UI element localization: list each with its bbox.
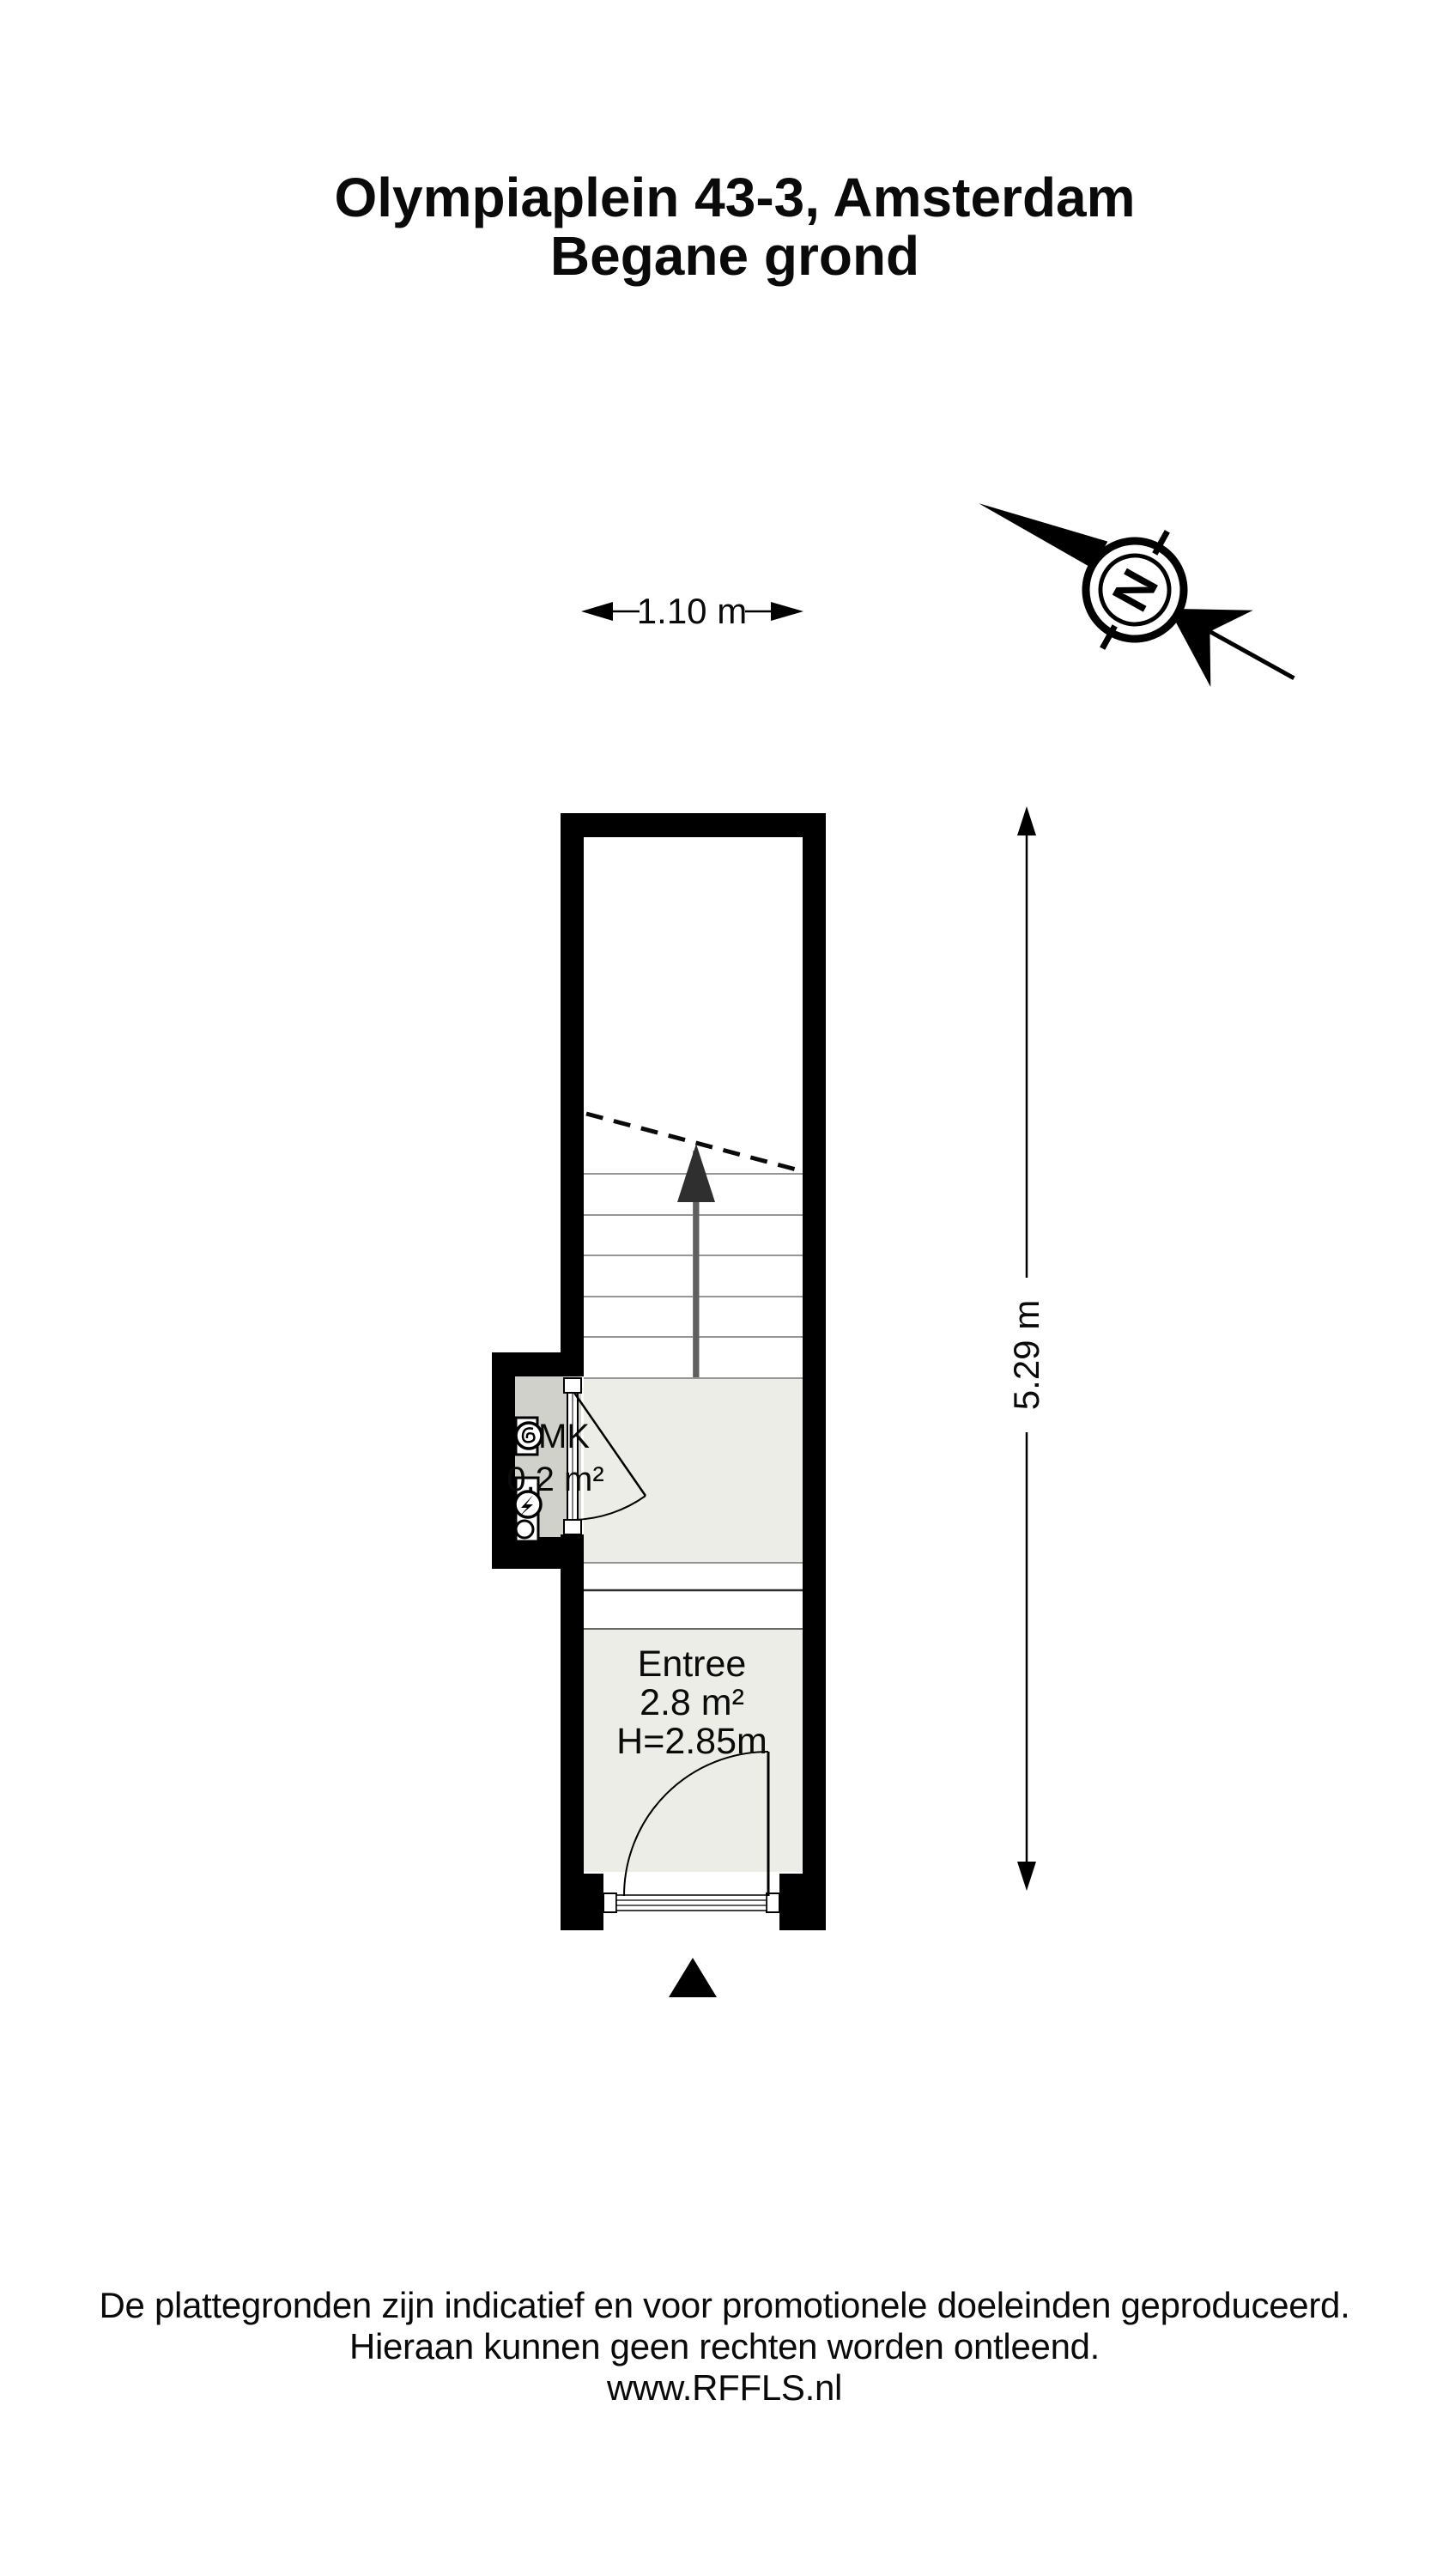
water-meter-icon [516, 1521, 533, 1538]
dimension-arrow-down-icon [1017, 1862, 1036, 1891]
entree-room-area: 2.8 m² [616, 1684, 767, 1722]
floorplan-page: N Olympiaplein 43-3, Amsterdam Begane gr… [0, 0, 1449, 2576]
dimension-arrow-right-icon [771, 602, 803, 621]
mk-room-area: 0.2 m² [506, 1461, 603, 1499]
wall-mk-top [492, 1352, 584, 1376]
wall-top [561, 813, 826, 837]
dimension-arrow-up-icon [1017, 806, 1036, 835]
entrance-arrow-icon [669, 1958, 717, 1997]
width-dimension-label: 1.10 m [637, 591, 747, 632]
floorplan-graphic: N [0, 0, 1449, 2576]
front-door-threshold [616, 1895, 767, 1911]
wall-left-upper [561, 837, 584, 1376]
disclaimer-line1: De plattegronden zijn indicatief en voor… [0, 2285, 1449, 2326]
entree-room-name: Entree [616, 1645, 767, 1684]
wall-door-jamb-right [779, 1874, 803, 1930]
landing-floor [584, 1378, 803, 1563]
dimension-arrow-left-icon [581, 602, 613, 621]
entree-room-label-block: Entree 2.8 m² H=2.85m [616, 1645, 767, 1761]
north-compass-icon: N [946, 445, 1326, 737]
compass-needle [978, 477, 1107, 568]
wall-left-lower [561, 1534, 584, 1930]
mk-door-post-bottom [564, 1520, 581, 1534]
wall-right [803, 837, 826, 1930]
height-dimension-label: 5.29 m [1006, 1300, 1047, 1410]
entree-room-height: H=2.85m [616, 1722, 767, 1761]
wall-door-jamb-left [584, 1874, 603, 1930]
mk-room-label: MK [538, 1418, 590, 1456]
front-door-post-left [603, 1893, 616, 1912]
mk-door-post-top [564, 1378, 581, 1393]
page-title: Olympiaplein 43-3, Amsterdam Begane gron… [334, 168, 1135, 285]
website-url: www.RFFLS.nl [0, 2367, 1449, 2409]
title-floor-name: Begane grond [334, 227, 1135, 285]
disclaimer: De plattegronden zijn indicatief en voor… [0, 2285, 1449, 2409]
disclaimer-line2: Hieraan kunnen geen rechten worden ontle… [0, 2326, 1449, 2367]
front-door-post-right [767, 1893, 779, 1912]
title-address: Olympiaplein 43-3, Amsterdam [334, 168, 1135, 227]
